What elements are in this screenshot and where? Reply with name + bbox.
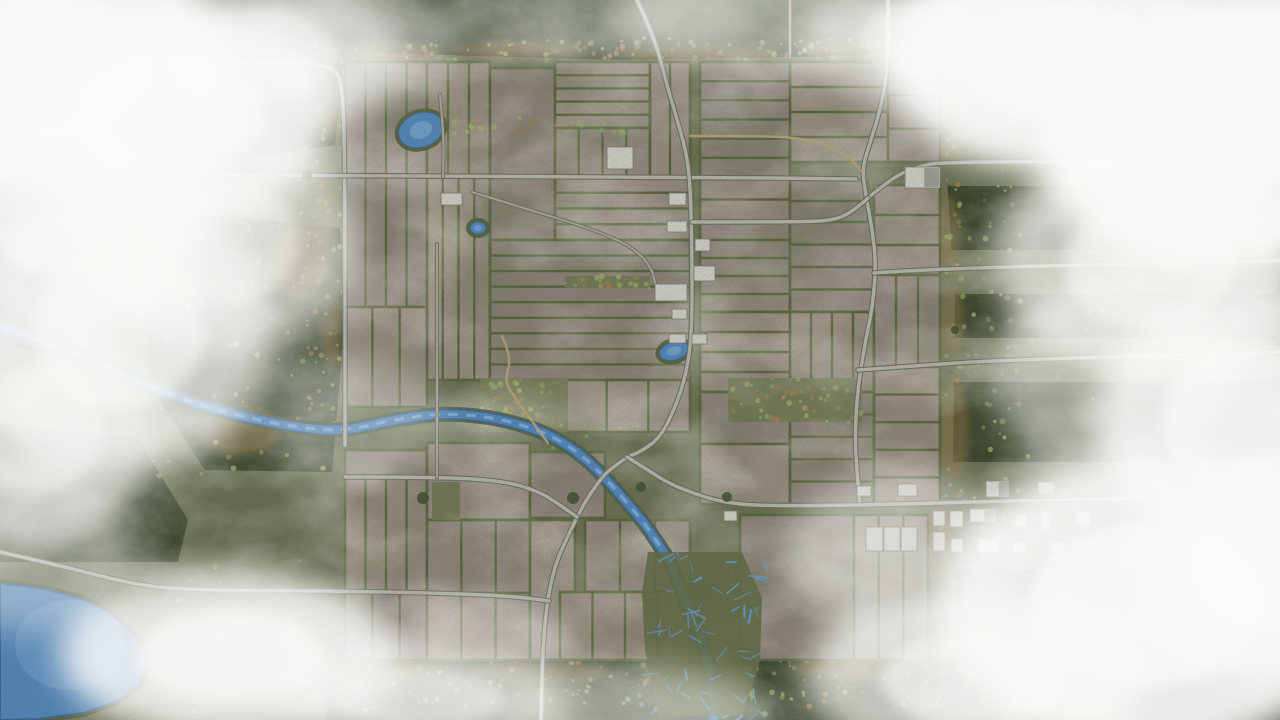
aerial-farm-map	[0, 0, 1280, 720]
map-viewport[interactable]	[0, 0, 1280, 720]
haze-overlay	[0, 0, 1280, 720]
